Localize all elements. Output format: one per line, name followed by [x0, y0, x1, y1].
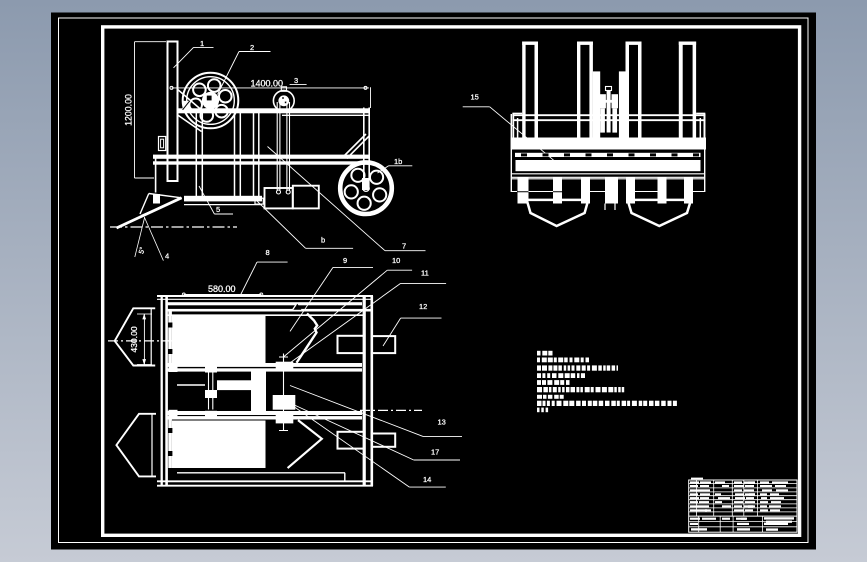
svg-text:2: 2 [250, 43, 254, 52]
svg-text:1400.00: 1400.00 [251, 79, 284, 89]
svg-text:13: 13 [438, 418, 446, 427]
svg-text:53.: 53. [236, 385, 245, 391]
svg-text:5: 5 [216, 205, 220, 214]
svg-text:8: 8 [266, 248, 270, 257]
svg-text:3: 3 [294, 76, 298, 85]
svg-text:b: b [321, 236, 325, 245]
svg-text:15: 15 [471, 93, 479, 102]
svg-text:1b: 1b [394, 157, 402, 166]
svg-text:9: 9 [343, 256, 347, 265]
svg-text:4: 4 [165, 252, 169, 261]
svg-text:14: 14 [423, 475, 431, 484]
svg-text:430.00: 430.00 [129, 326, 139, 353]
svg-text:12: 12 [419, 302, 427, 311]
svg-text:1200.00: 1200.00 [124, 94, 134, 126]
svg-text:10: 10 [392, 256, 400, 265]
svg-text:7: 7 [402, 242, 406, 251]
svg-text:11: 11 [421, 268, 429, 277]
svg-text:1: 1 [200, 39, 204, 48]
svg-text:17: 17 [431, 448, 439, 457]
svg-text:580.00: 580.00 [208, 284, 236, 294]
